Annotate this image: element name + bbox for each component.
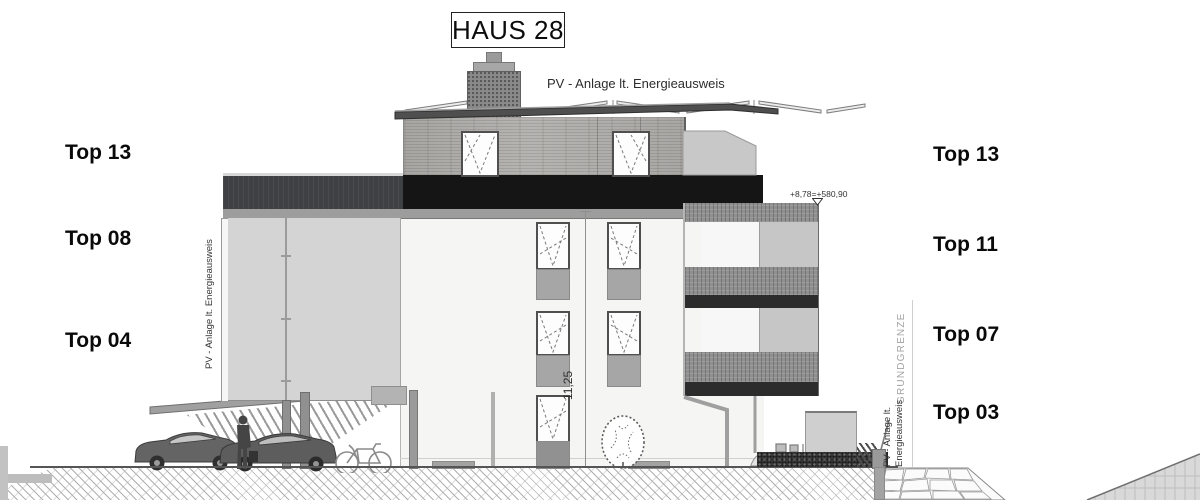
unit-label-right-top03: Top 03 [933, 401, 999, 425]
balcony-opening [701, 308, 760, 352]
pv-panel-seam [285, 218, 287, 400]
shrub [595, 414, 651, 470]
balcony-railing [685, 267, 818, 295]
penthouse-window [612, 131, 650, 177]
facade-window [536, 222, 570, 270]
foreground-staffage [130, 415, 400, 473]
penthouse-window [461, 131, 499, 177]
left-wing-parapet [223, 176, 403, 209]
facade-window [607, 222, 641, 270]
roof-wing [680, 120, 762, 178]
window-spandrel [607, 355, 641, 387]
dimension-tick [580, 211, 591, 212]
pv-panel-joint [281, 255, 291, 257]
embankment-slope [1083, 446, 1200, 500]
facade-window [536, 395, 570, 443]
unit-label-left-top08: Top 08 [65, 227, 131, 251]
pv-panel-joint [281, 380, 291, 382]
level-annotation: +8,78=+580,90 [790, 189, 847, 199]
balcony-railing [685, 203, 818, 222]
pv-facade-annotation: PV - Anlage lt. Energieausweis [204, 224, 215, 369]
balcony-slab [685, 295, 818, 308]
window-spandrel [536, 269, 570, 300]
facade-post [491, 392, 495, 467]
bicycle [336, 444, 391, 473]
dimension-value: 11,25 [561, 330, 575, 400]
elevation-drawing: HAUS 28 PV - Anlage lt. Energieausweis T… [0, 0, 1200, 500]
boundary-label: GRUNDGRENZE [896, 326, 907, 404]
balcony-glazing [760, 308, 818, 352]
penthouse-wall-seam [597, 117, 598, 175]
facade-post [409, 390, 418, 469]
unit-label-right-top13: Top 13 [933, 143, 999, 167]
pv-panel-joint [281, 318, 291, 320]
fence-post [874, 467, 885, 500]
dimension-line [585, 211, 586, 467]
unit-label-right-top07: Top 07 [933, 323, 999, 347]
balcony-glazing [760, 222, 818, 267]
balcony-opening [701, 222, 760, 267]
panel-base-box [371, 386, 407, 405]
pv-right-annotation: PV - Anlage lt. Energieausweis [882, 397, 906, 467]
pv-facade-panel [228, 218, 401, 401]
boundary-line [912, 300, 913, 467]
left-edge-element [0, 446, 8, 500]
facade-window [607, 311, 641, 356]
level-marker-icon [812, 198, 823, 206]
balcony-stack [683, 203, 819, 396]
window-spandrel [607, 269, 641, 300]
balcony-railing [685, 352, 818, 382]
window-spandrel [536, 441, 570, 469]
unit-label-left-top04: Top 04 [65, 329, 131, 353]
drawing-title: HAUS 28 [451, 12, 565, 48]
unit-label-right-top11: Top 11 [933, 233, 998, 257]
roof-pv-annotation: PV - Anlage lt. Energieausweis [547, 76, 725, 91]
unit-label-left-top13: Top 13 [65, 141, 131, 165]
